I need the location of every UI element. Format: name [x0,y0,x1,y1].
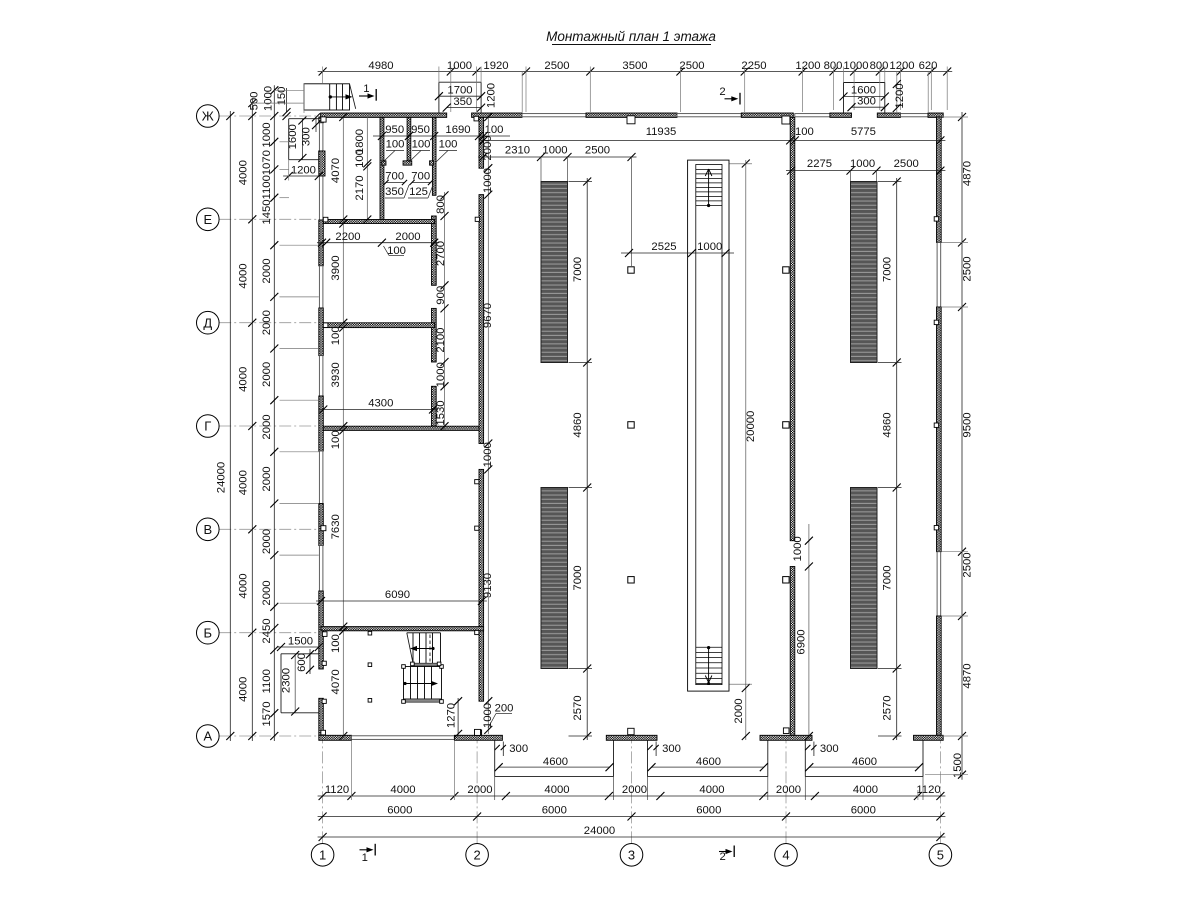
svg-text:2: 2 [473,847,480,862]
svg-text:350: 350 [385,186,404,198]
svg-text:2000: 2000 [261,414,273,439]
svg-text:100: 100 [412,139,431,151]
svg-text:2000: 2000 [622,784,647,796]
svg-text:9670: 9670 [482,303,494,328]
svg-text:2000: 2000 [261,529,273,554]
svg-text:1000: 1000 [482,168,494,193]
svg-text:1: 1 [319,847,326,862]
svg-text:20000: 20000 [745,411,757,442]
svg-text:2500: 2500 [894,158,919,170]
svg-text:2570: 2570 [572,695,584,720]
svg-text:4600: 4600 [852,756,877,768]
svg-text:100: 100 [354,149,366,168]
svg-text:100: 100 [387,245,406,257]
svg-text:800: 800 [824,60,843,72]
svg-text:1200: 1200 [795,60,820,72]
svg-text:4000: 4000 [238,573,250,598]
svg-text:3: 3 [628,847,635,862]
svg-text:2500: 2500 [962,552,974,577]
svg-text:1000: 1000 [482,442,494,467]
svg-text:3900: 3900 [330,255,342,280]
svg-text:2170: 2170 [354,175,366,200]
svg-text:1000: 1000 [261,122,273,147]
svg-text:300: 300 [820,743,839,755]
svg-text:2500: 2500 [585,144,610,156]
svg-text:800: 800 [870,60,889,72]
svg-text:500: 500 [249,92,261,111]
svg-text:700: 700 [385,171,404,183]
svg-text:Г: Г [204,419,211,434]
svg-text:В: В [203,522,212,537]
svg-text:1120: 1120 [916,784,940,796]
svg-text:1000: 1000 [697,241,722,253]
svg-text:2000: 2000 [395,231,420,243]
svg-text:2500: 2500 [962,256,974,281]
svg-text:4600: 4600 [696,756,721,768]
svg-text:4300: 4300 [368,398,393,410]
svg-text:2000: 2000 [733,698,745,723]
svg-text:300: 300 [857,95,876,107]
svg-text:9130: 9130 [482,573,494,598]
svg-text:4860: 4860 [882,412,894,437]
svg-text:1200: 1200 [485,83,497,108]
svg-text:1570: 1570 [261,701,273,726]
svg-text:100: 100 [485,124,504,136]
svg-text:4070: 4070 [330,158,342,183]
svg-text:6090: 6090 [385,589,410,601]
svg-text:1690: 1690 [445,124,470,136]
svg-text:1600: 1600 [287,124,299,149]
svg-text:4860: 4860 [572,412,584,437]
svg-text:1500: 1500 [952,753,964,778]
svg-text:11935: 11935 [646,126,677,138]
svg-text:6000: 6000 [542,804,567,816]
svg-text:4000: 4000 [544,784,569,796]
svg-text:800: 800 [435,195,447,214]
svg-text:4000: 4000 [238,263,250,288]
svg-text:100: 100 [330,634,342,653]
svg-text:1000: 1000 [482,703,494,728]
svg-text:1000: 1000 [435,362,447,387]
svg-text:900: 900 [435,286,447,305]
svg-text:2250: 2250 [741,60,766,72]
svg-text:4980: 4980 [368,60,393,72]
svg-text:150: 150 [276,87,288,106]
svg-text:7000: 7000 [572,565,584,590]
svg-text:100: 100 [330,326,342,345]
svg-text:2700: 2700 [435,241,447,266]
svg-text:3930: 3930 [330,362,342,387]
svg-text:1000: 1000 [262,86,274,111]
svg-text:3500: 3500 [622,60,647,72]
svg-text:5: 5 [937,847,944,862]
svg-text:1200: 1200 [291,165,316,177]
svg-text:2310: 2310 [505,144,530,156]
svg-text:1500: 1500 [288,636,313,648]
svg-text:4000: 4000 [238,677,250,702]
svg-text:4600: 4600 [543,756,568,768]
svg-text:2525: 2525 [651,241,676,253]
svg-text:1: 1 [363,83,369,95]
svg-text:2300: 2300 [281,668,293,693]
svg-text:6000: 6000 [387,804,412,816]
svg-text:2450: 2450 [261,618,273,643]
svg-text:300: 300 [662,743,681,755]
svg-text:1070: 1070 [261,150,273,175]
svg-text:2570: 2570 [882,695,894,720]
svg-text:2000: 2000 [261,362,273,387]
svg-text:2: 2 [719,86,725,98]
svg-text:6000: 6000 [696,804,721,816]
svg-text:Е: Е [203,212,212,227]
svg-text:300: 300 [301,127,313,146]
svg-text:1270: 1270 [445,703,457,728]
svg-text:4000: 4000 [853,784,878,796]
svg-text:4870: 4870 [962,161,974,186]
svg-text:2000: 2000 [261,258,273,283]
svg-text:4000: 4000 [238,160,250,185]
svg-text:2000: 2000 [776,784,801,796]
svg-text:2000: 2000 [261,580,273,605]
svg-text:125: 125 [409,186,428,198]
svg-text:7630: 7630 [330,514,342,539]
svg-text:1120: 1120 [325,784,349,796]
svg-text:2000: 2000 [467,784,492,796]
svg-text:100: 100 [795,126,814,138]
svg-text:2275: 2275 [807,158,832,170]
svg-text:1000: 1000 [792,536,804,561]
svg-text:Ж: Ж [202,109,214,124]
svg-text:7000: 7000 [572,257,584,282]
svg-text:1200: 1200 [889,60,914,72]
svg-text:1000: 1000 [850,158,875,170]
svg-text:1920: 1920 [483,60,508,72]
svg-text:4000: 4000 [390,784,415,796]
svg-text:4070: 4070 [330,669,342,694]
svg-text:2000: 2000 [261,466,273,491]
svg-text:1000: 1000 [843,60,868,72]
svg-text:2000: 2000 [261,310,273,335]
svg-text:Б: Б [204,625,213,640]
svg-text:600: 600 [296,653,308,672]
svg-text:2500: 2500 [544,60,569,72]
svg-text:24000: 24000 [216,462,228,493]
svg-text:200: 200 [495,703,514,715]
svg-text:7000: 7000 [882,565,894,590]
svg-text:4: 4 [782,847,789,862]
svg-text:1000: 1000 [542,144,567,156]
svg-text:1530: 1530 [435,400,447,425]
svg-text:Д: Д [203,315,212,330]
svg-text:4870: 4870 [962,663,974,688]
svg-text:5775: 5775 [851,126,876,138]
svg-text:1100: 1100 [261,669,273,693]
svg-text:Монтажный план 1 этажа: Монтажный план 1 этажа [546,29,716,44]
svg-text:1700: 1700 [447,84,472,96]
svg-text:2: 2 [720,851,726,863]
svg-text:2200: 2200 [335,231,360,243]
svg-text:9500: 9500 [962,412,974,437]
svg-text:1: 1 [362,852,368,864]
svg-text:4000: 4000 [699,784,724,796]
svg-text:100: 100 [386,139,405,151]
svg-text:6900: 6900 [796,629,808,654]
svg-text:950: 950 [411,124,430,136]
svg-text:950: 950 [385,124,404,136]
svg-text:2100: 2100 [435,328,447,353]
svg-text:4000: 4000 [238,367,250,392]
svg-text:6000: 6000 [851,804,876,816]
svg-text:350: 350 [453,96,472,108]
svg-text:А: А [203,729,212,744]
svg-text:100: 100 [330,430,342,449]
svg-text:1100: 1100 [261,175,273,199]
svg-text:100: 100 [439,139,458,151]
svg-text:4000: 4000 [238,470,250,495]
svg-text:300: 300 [509,743,528,755]
svg-text:24000: 24000 [584,825,615,837]
svg-text:620: 620 [919,60,938,72]
svg-text:2500: 2500 [679,60,704,72]
svg-text:1450: 1450 [261,199,273,224]
svg-text:700: 700 [411,171,430,183]
svg-text:7000: 7000 [882,257,894,282]
